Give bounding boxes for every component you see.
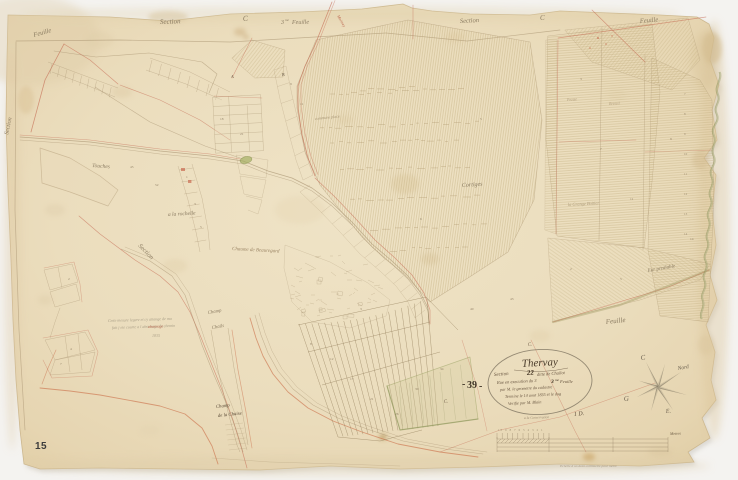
- svg-text:4: 4: [70, 347, 72, 351]
- svg-text:B: B: [282, 72, 285, 77]
- svg-text:3: 3: [580, 77, 582, 81]
- svg-text:52: 52: [155, 183, 159, 187]
- svg-text:21: 21: [240, 132, 244, 136]
- svg-text:14: 14: [690, 237, 694, 241]
- svg-text:Breteil: Breteil: [609, 100, 621, 106]
- svg-text:Feuille: Feuille: [291, 20, 309, 26]
- svg-text:22: 22: [526, 368, 535, 377]
- svg-text:1 D.: 1 D.: [574, 411, 585, 418]
- svg-text:17: 17: [350, 377, 354, 381]
- svg-text:43: 43: [510, 297, 514, 301]
- svg-text:C: C: [540, 14, 545, 22]
- svg-text:15: 15: [35, 441, 47, 452]
- svg-text:39: 39: [467, 380, 477, 391]
- svg-text:21: 21: [370, 397, 374, 401]
- svg-text:Thervay: Thervay: [522, 356, 559, 370]
- svg-text:10 9 8 7 6 5 4 3 2 1: 10 9 8 7 6 5 4 3 2 1: [498, 429, 544, 432]
- svg-text:7: 7: [60, 362, 62, 366]
- svg-text:6: 6: [420, 217, 422, 221]
- svg-text:Section: Section: [460, 17, 479, 25]
- svg-text:30: 30: [415, 387, 419, 391]
- svg-text:18: 18: [220, 117, 224, 121]
- svg-text:3: 3: [280, 20, 284, 26]
- svg-text:40: 40: [470, 307, 474, 311]
- svg-text:2: 2: [68, 277, 70, 281]
- svg-text:10: 10: [684, 152, 688, 156]
- svg-text:3: 3: [194, 202, 196, 206]
- svg-text:A: A: [231, 74, 234, 79]
- svg-text:9: 9: [670, 137, 672, 141]
- svg-text:C.: C.: [444, 399, 449, 405]
- svg-text:11: 11: [630, 197, 634, 201]
- svg-text:abornage: abornage: [148, 323, 164, 329]
- svg-text:Metres: Metres: [669, 431, 682, 436]
- svg-text:me: me: [555, 378, 560, 382]
- svg-text:26: 26: [395, 412, 399, 416]
- svg-text:11: 11: [684, 172, 687, 176]
- svg-text:Feuille: Feuille: [559, 379, 573, 384]
- svg-text:C.: C.: [528, 342, 533, 348]
- svg-text:9: 9: [290, 82, 292, 86]
- svg-text:me: me: [285, 18, 290, 22]
- svg-text:E.: E.: [665, 409, 672, 416]
- svg-text:G: G: [623, 395, 629, 403]
- svg-text:3: 3: [360, 307, 362, 311]
- svg-text:Touches: Touches: [92, 163, 110, 170]
- svg-text:-: -: [479, 381, 482, 392]
- svg-text:-: -: [462, 379, 465, 390]
- svg-text:13: 13: [684, 212, 688, 216]
- svg-text:1: 1: [186, 175, 188, 179]
- svg-text:12: 12: [330, 357, 334, 361]
- svg-text:11: 11: [300, 102, 304, 106]
- svg-text:5: 5: [620, 277, 622, 281]
- svg-text:14: 14: [684, 232, 688, 236]
- svg-text:Section: Section: [160, 17, 181, 26]
- svg-text:45: 45: [130, 165, 134, 169]
- svg-text:Pezize: Pezize: [566, 96, 578, 102]
- svg-text:Echelle d un demi-millimetre p: Echelle d un demi-millimetre pour metre: [559, 464, 617, 468]
- svg-text:Section: Section: [494, 372, 510, 378]
- svg-text:1835: 1835: [152, 333, 160, 338]
- svg-text:5: 5: [480, 117, 482, 121]
- svg-text:8: 8: [310, 342, 312, 346]
- svg-text:5: 5: [200, 225, 202, 229]
- svg-text:34: 34: [440, 367, 444, 371]
- svg-text:2: 2: [570, 267, 572, 271]
- svg-text:7: 7: [600, 147, 602, 151]
- svg-text:12: 12: [684, 192, 688, 196]
